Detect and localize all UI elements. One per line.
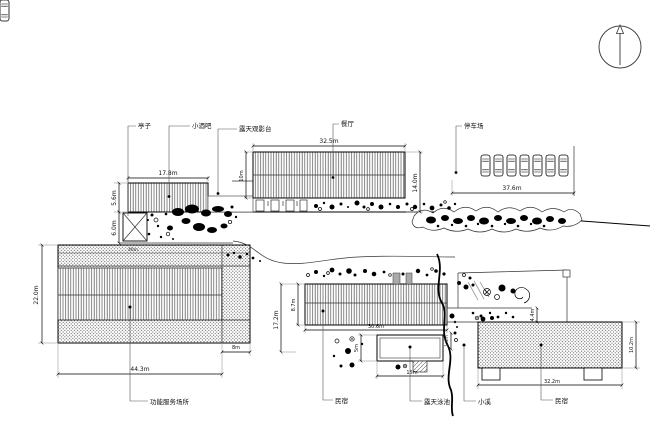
restaurant-building <box>253 152 405 211</box>
dim-service-ext: 8m <box>232 345 240 351</box>
service-building: 46m <box>58 245 250 343</box>
label-pavilion: 亭子 <box>138 121 152 130</box>
site-plan-sheet: 46m <box>0 0 650 438</box>
dim-gh-right-height: 10.2m <box>629 337 635 353</box>
guesthouse-right-building <box>478 322 622 380</box>
dim-pool-length: 15m <box>406 370 417 376</box>
dim-stream-width: 1.4m <box>444 335 450 347</box>
parking-stalls <box>0 0 568 176</box>
dim-gh-mid-height: 8.7m <box>291 298 297 311</box>
service-inner-dim: 46m <box>128 247 138 253</box>
pavilion <box>123 213 147 241</box>
label-guesthouse-mid: 民宿 <box>335 396 349 405</box>
dim-bar-width: 17.8m <box>158 170 177 177</box>
dim-bar-gap: 6.0m <box>111 220 118 236</box>
label-service: 功能服务场所 <box>150 397 190 406</box>
label-stage: 露天观影台 <box>239 124 272 133</box>
label-guesthouse-right: 民宿 <box>555 396 569 405</box>
site-plan-drawing: 46m <box>0 0 650 438</box>
dim-gh-mid-total: 17.2m <box>273 310 280 329</box>
north-arrow-icon <box>599 25 641 68</box>
dim-parking-width: 37.6m <box>502 185 521 192</box>
label-parking: 停车场 <box>464 121 484 130</box>
vegetation-row-guesthouse <box>307 268 446 278</box>
guesthouse-mid-building <box>305 273 447 325</box>
shrub-band <box>412 207 582 232</box>
dim-restaurant-height-right: 14.0m <box>412 173 419 192</box>
label-restaurant: 餐厅 <box>341 119 355 128</box>
dim-service-height: 22.0m <box>33 285 40 304</box>
label-bar: 小酒吧 <box>192 121 212 130</box>
terrace <box>447 270 570 322</box>
dim-gh-right-width: 32.2m <box>544 379 560 385</box>
vegetation-terrace <box>472 285 530 322</box>
dim-pool-width: 5m <box>354 344 360 352</box>
dim-gh-mid-width: 30.6m <box>368 324 384 330</box>
dim-restaurant-height-left: 10m <box>239 170 245 181</box>
label-pool: 露天泳池 <box>424 397 451 406</box>
dim-bar-height: 5.6m <box>111 190 118 206</box>
dim-terrace-height: 4.4m <box>530 308 536 321</box>
vegetation-row-mid <box>314 201 456 211</box>
dim-restaurant-width: 32.5m <box>319 138 338 145</box>
label-stream: 小溪 <box>478 397 492 406</box>
dim-service-width: 44.3m <box>130 366 149 373</box>
